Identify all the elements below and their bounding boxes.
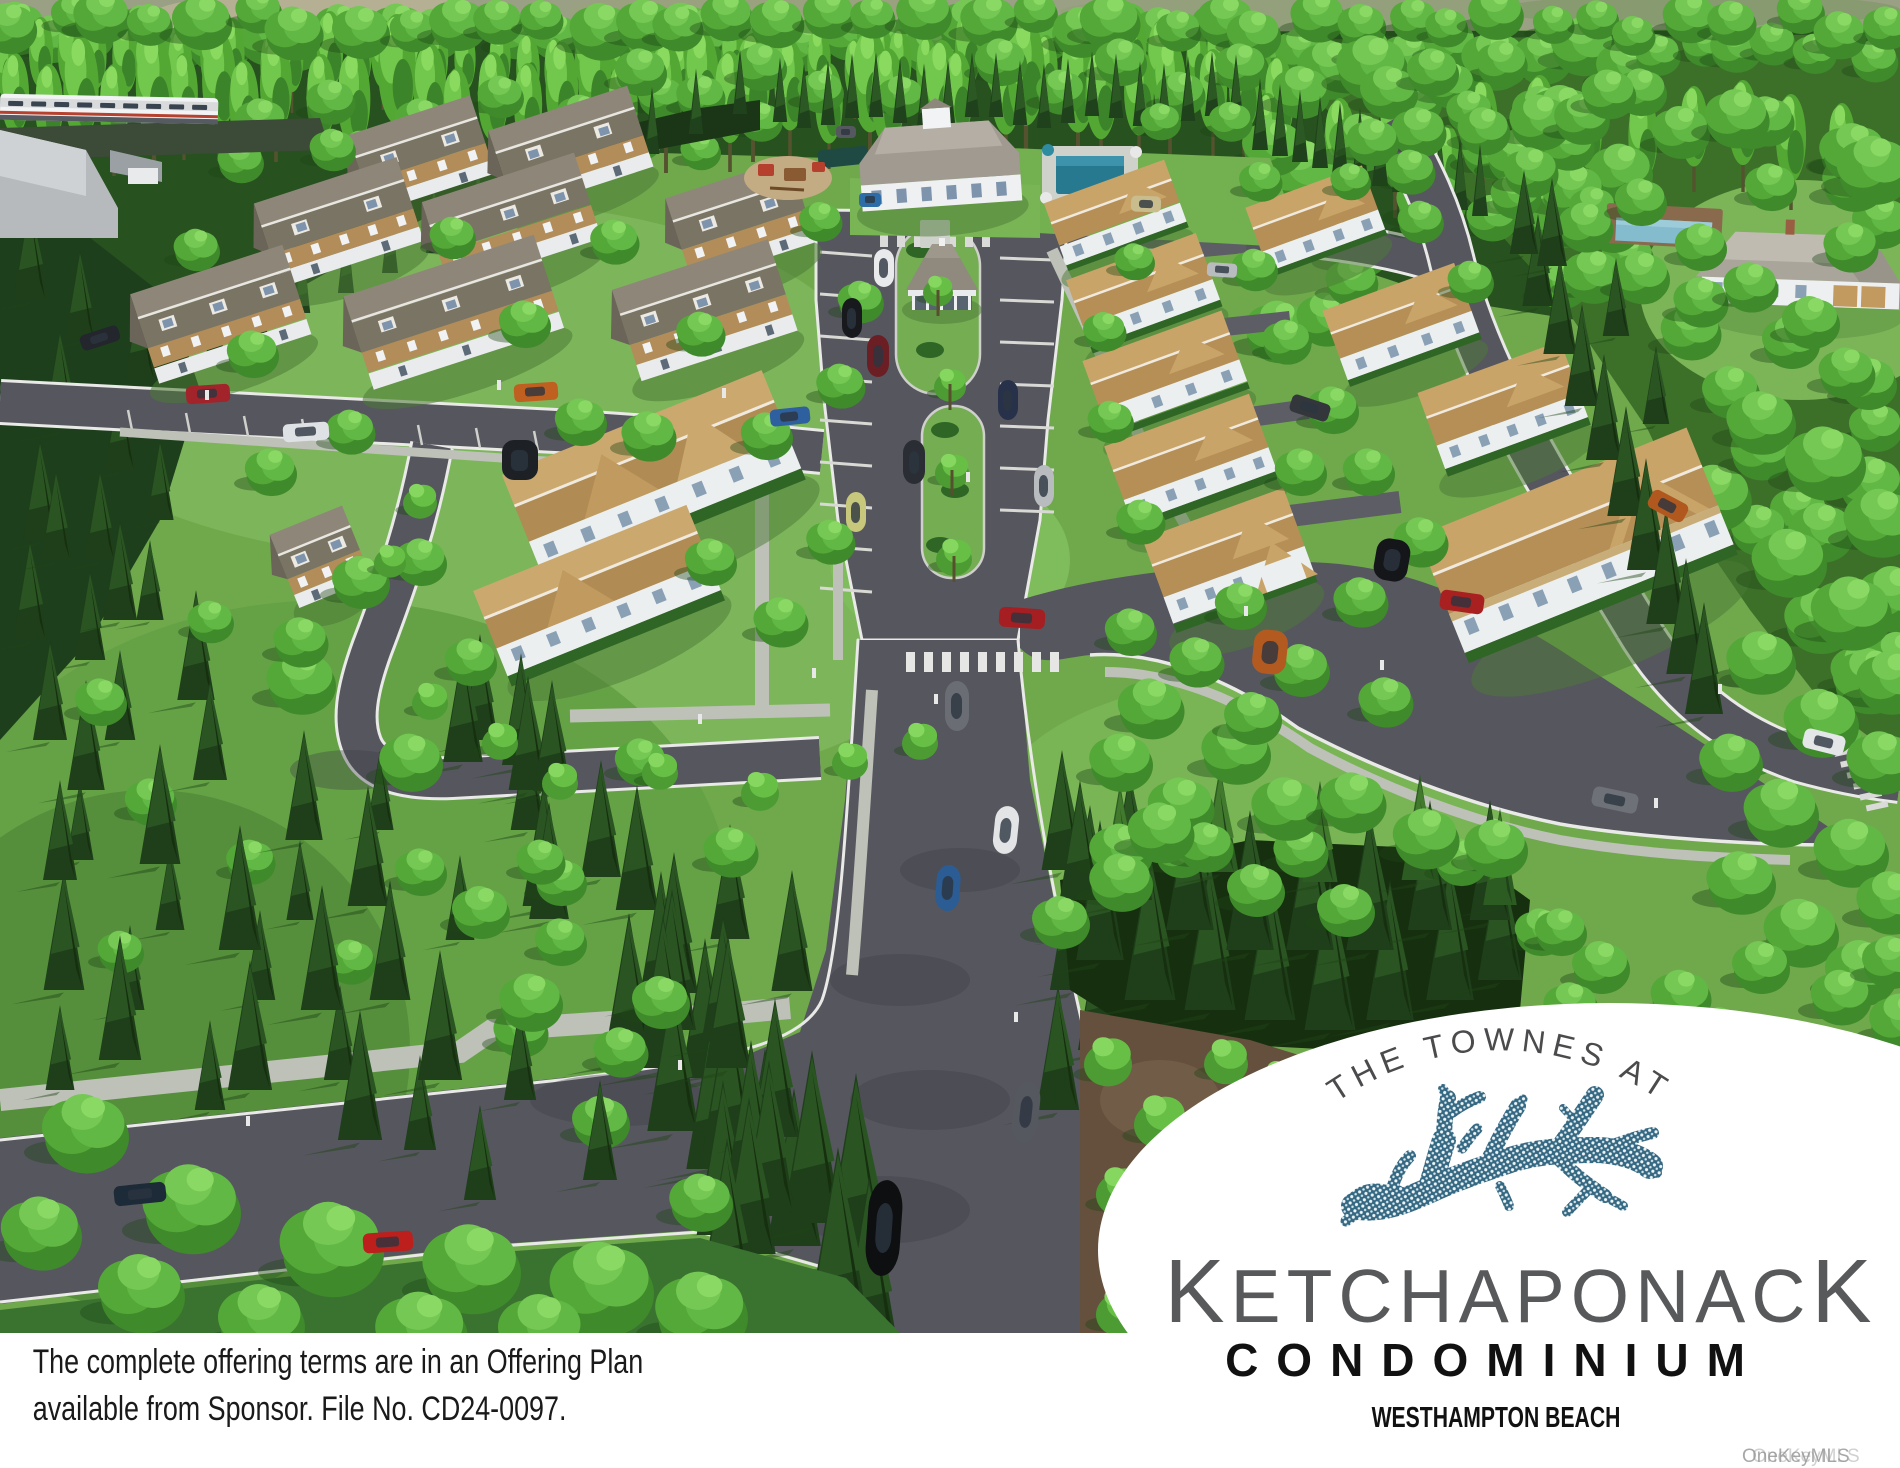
- svg-text:CONDOMINIUM: CONDOMINIUM: [1225, 1334, 1763, 1386]
- svg-text:KETCHAPONACK: KETCHAPONACK: [1165, 1242, 1878, 1342]
- svg-text:OneKeyMLS: OneKeyMLS: [1752, 1446, 1860, 1467]
- svg-text:WESTHAMPTON BEACH: WESTHAMPTON BEACH: [1372, 1402, 1621, 1434]
- svg-text:The complete offering terms ar: The complete offering terms are in an Of…: [33, 1342, 643, 1381]
- svg-text:available from Sponsor. File N: available from Sponsor. File No. CD24-00…: [33, 1389, 567, 1428]
